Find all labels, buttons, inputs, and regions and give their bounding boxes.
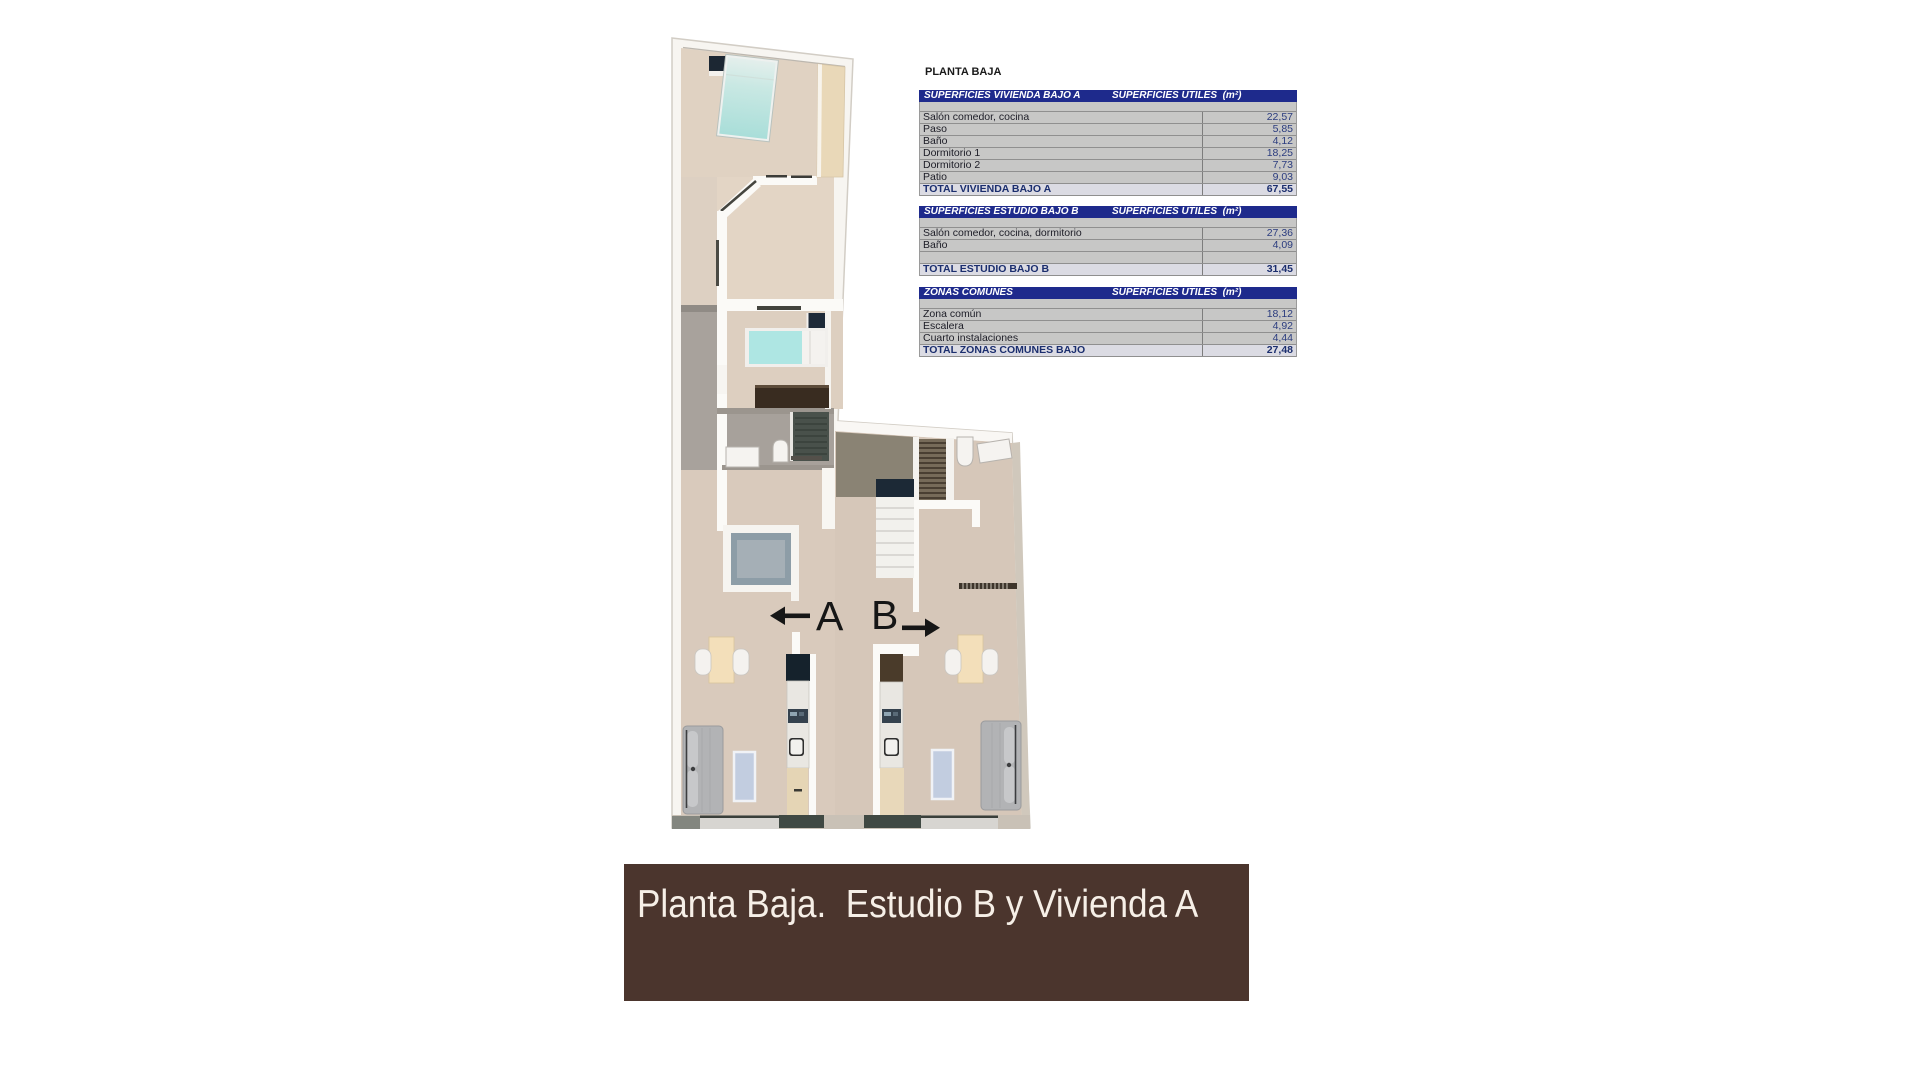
svg-text:B: B bbox=[871, 592, 898, 638]
svg-text:A: A bbox=[816, 593, 844, 639]
